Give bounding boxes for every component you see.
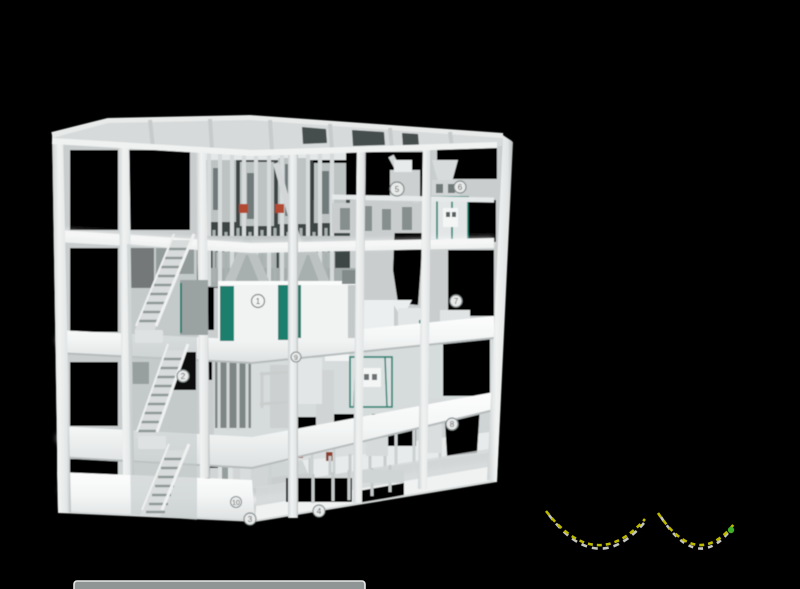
svg-text:3: 3	[248, 515, 253, 524]
svg-text:8: 8	[450, 420, 455, 429]
svg-text:4: 4	[317, 507, 322, 516]
svg-text:10: 10	[232, 500, 240, 507]
svg-text:5: 5	[395, 185, 400, 194]
svg-text:1: 1	[256, 297, 261, 306]
svg-text:9: 9	[294, 355, 298, 362]
svg-text:2: 2	[181, 372, 186, 381]
svg-text:7: 7	[454, 297, 459, 306]
svg-text:6: 6	[458, 183, 463, 192]
